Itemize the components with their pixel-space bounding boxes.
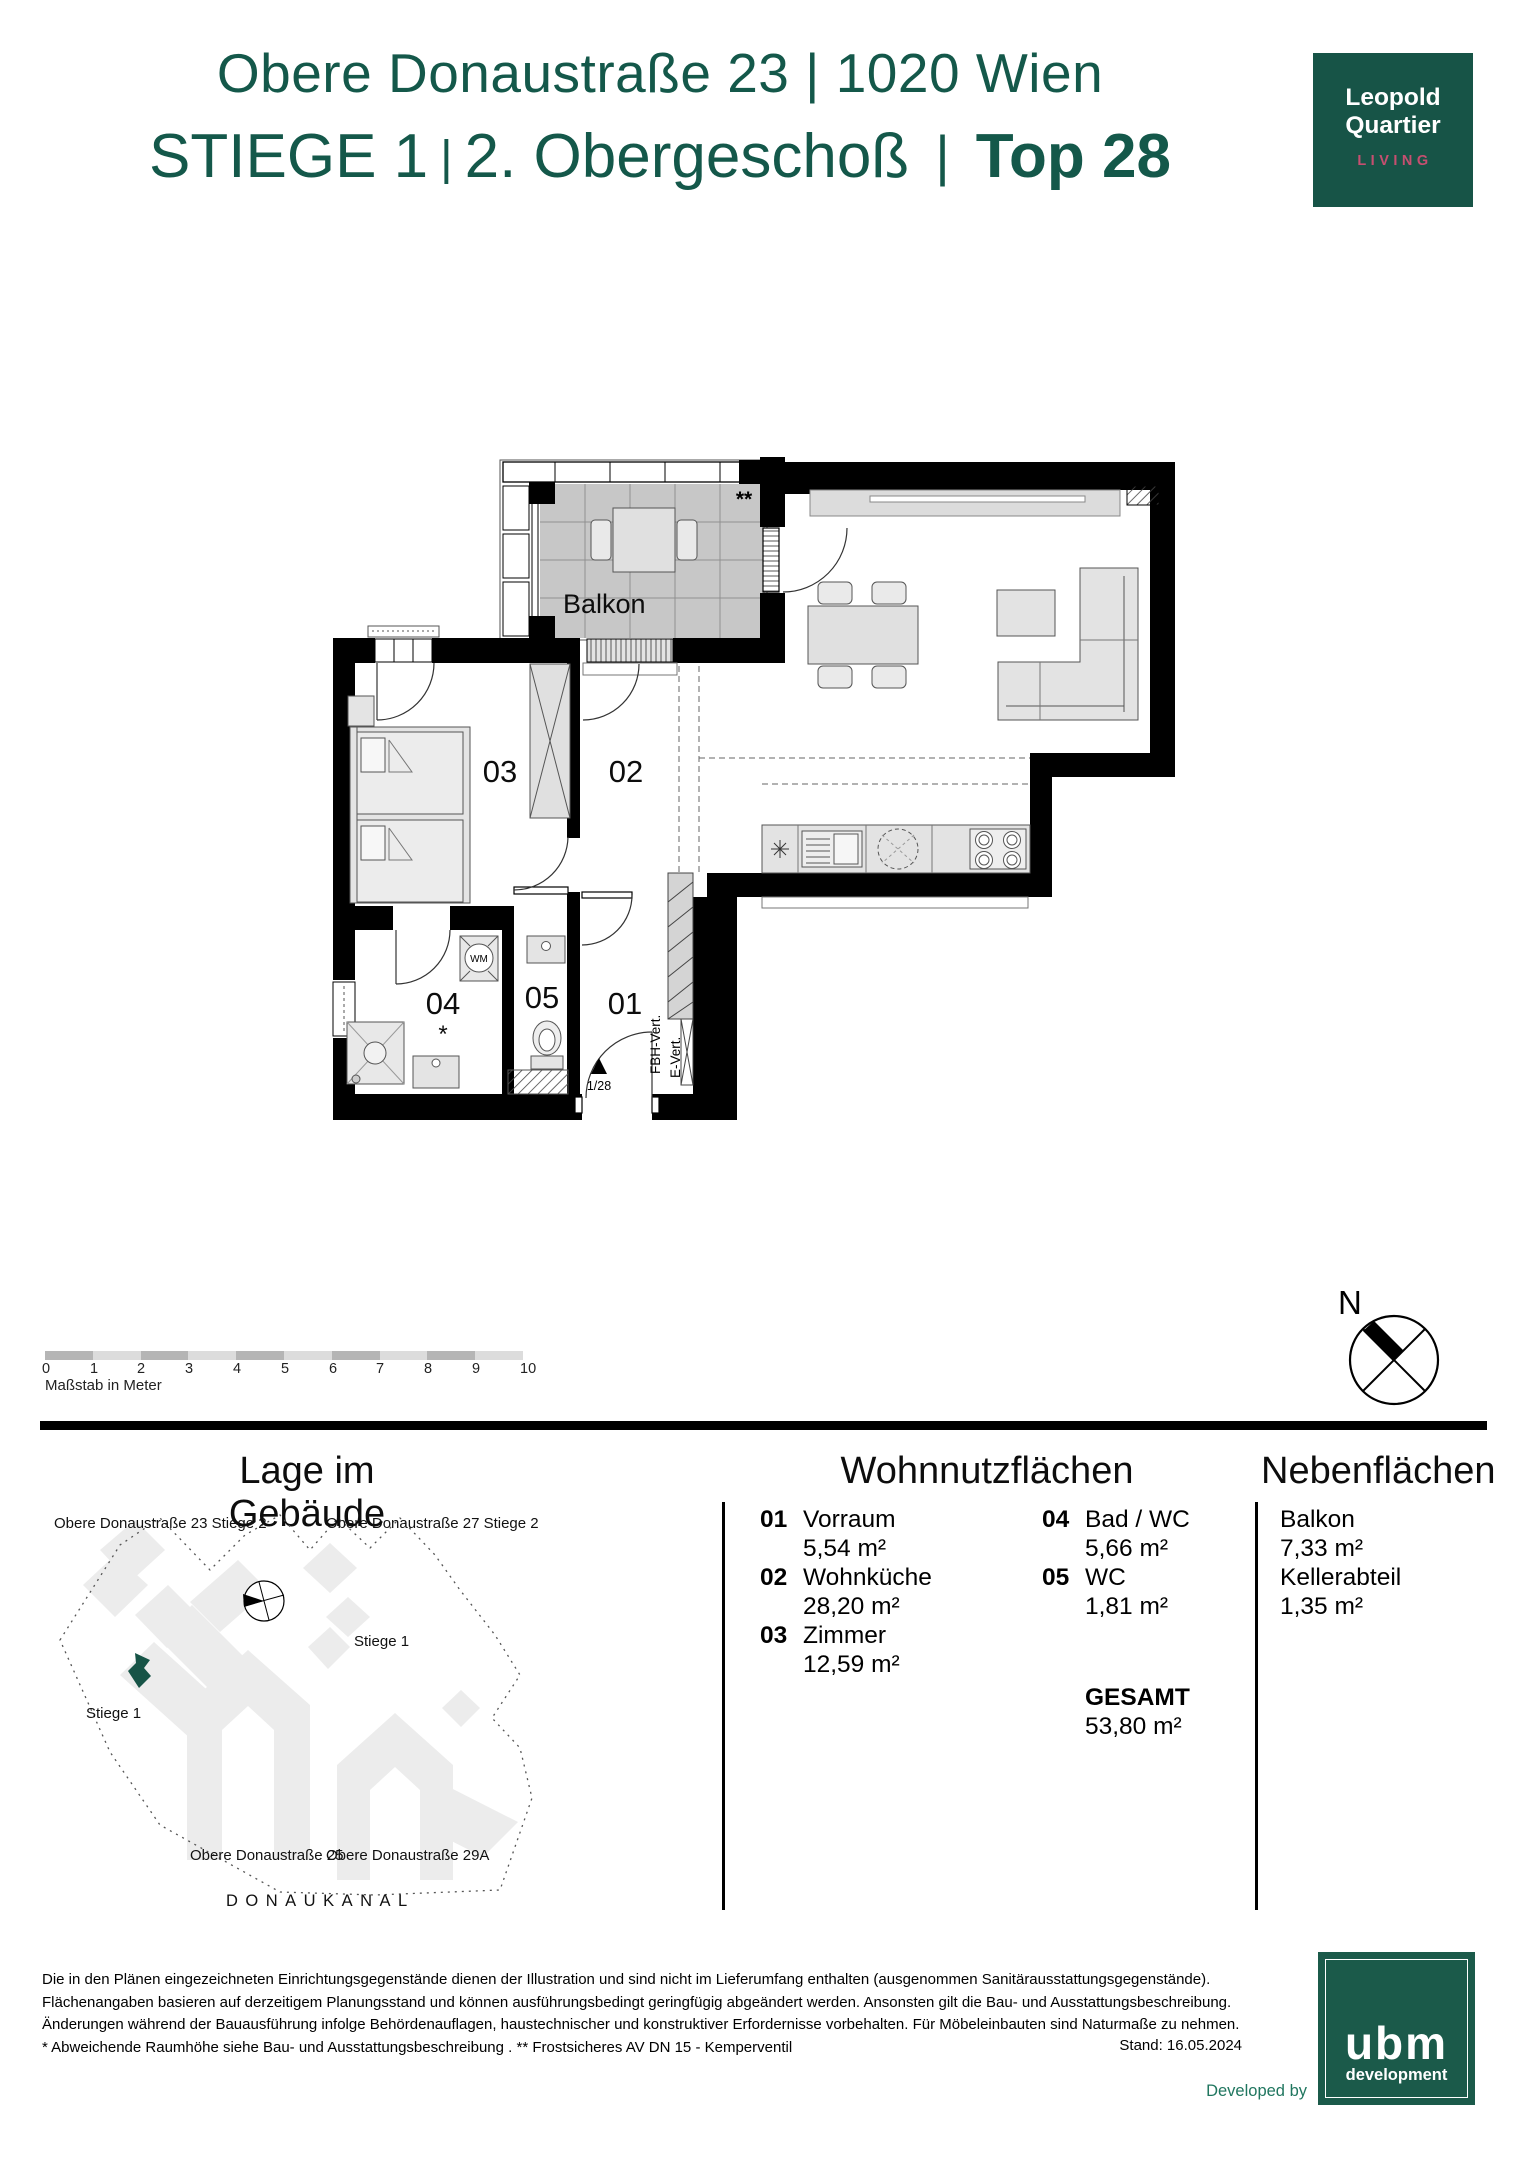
secondary-areas-title: Nebenflächen	[1261, 1450, 1481, 1493]
scale-tick: 5	[281, 1361, 311, 1377]
fbh-vert-label: FBH-Vert.	[648, 1015, 663, 1074]
ubm-subtitle: development	[1346, 2065, 1448, 2085]
balcony-window-corridor	[587, 639, 673, 662]
room-label-05: 05	[525, 980, 559, 1015]
room05-door-swing	[514, 837, 568, 890]
ubm-logo: ubm development	[1318, 1952, 1475, 2105]
site-label-stiege-left: Stiege 1	[86, 1705, 141, 1722]
area-row: 04 Bad / WC 5,66 m²	[1042, 1505, 1252, 1563]
total-area-block: GESAMT 53,80 m²	[1085, 1683, 1285, 1741]
area-value: 5,54 m²	[803, 1534, 1030, 1563]
site-label-canal: DONAUKANAL	[226, 1892, 415, 1910]
washing-machine-label: WM	[470, 954, 488, 965]
logo-tagline: LIVING	[1353, 153, 1432, 169]
room-label-04: 04	[426, 986, 460, 1021]
wc-fixtures	[508, 936, 568, 1094]
ubm-logo-inner: ubm development	[1325, 1959, 1468, 2098]
area-row: 05 WC 1,81 m²	[1042, 1563, 1252, 1621]
floorplan-drawing: Balkon **	[330, 440, 1180, 1125]
installation-shaft: FBH-Vert. E-Vert.	[648, 873, 693, 1085]
site-label-top-right: Obere Donaustraße 27 Stiege 2	[326, 1515, 539, 1532]
area-value: 12,59 m²	[803, 1650, 1030, 1679]
bedroom-furniture	[348, 664, 570, 903]
disclaimer-line: * Abweichende Raumhöhe siehe Bau- und Au…	[42, 2037, 792, 2060]
scale-tick: 3	[185, 1361, 215, 1377]
plan-date: Stand: 16.05.2024	[900, 2037, 1242, 2054]
area-number: 05	[1042, 1563, 1069, 1592]
room-label-02: 02	[609, 754, 643, 789]
ubm-wordmark: ubm	[1345, 2021, 1448, 2065]
secondary-area-value: 7,33 m²	[1280, 1534, 1490, 1563]
living-areas-title: Wohnnutzflächen	[837, 1450, 1137, 1493]
developed-by-label: Developed by	[1100, 2082, 1307, 2101]
site-label-bottom-left: Obere Donaustraße 25	[190, 1847, 343, 1864]
area-value: 28,20 m²	[803, 1592, 1030, 1621]
frost-valve-annotation: **	[736, 488, 753, 511]
area-row: 02 Wohnküche 28,20 m²	[760, 1563, 1030, 1621]
room04-star-annotation: *	[438, 1021, 447, 1048]
balcony: Balkon **	[500, 460, 767, 640]
secondary-area-name: Balkon	[1280, 1505, 1490, 1534]
scale-caption: Maßstab in Meter	[45, 1377, 162, 1394]
room01-door-swing	[582, 895, 632, 945]
section-divider	[40, 1421, 1487, 1430]
area-row: 01 Vorraum 5,54 m²	[760, 1505, 1030, 1563]
scale-tick: 4	[233, 1361, 263, 1377]
title-floor: 2. Obergeschoß	[465, 122, 910, 191]
scale-bar	[45, 1351, 523, 1360]
area-value: 1,81 m²	[1085, 1592, 1252, 1621]
area-name: Wohnküche	[803, 1563, 1030, 1592]
scale-tick: 2	[137, 1361, 167, 1377]
divider-left	[722, 1502, 725, 1910]
logo-line2: Quartier	[1345, 112, 1440, 140]
entry-mat	[508, 1070, 568, 1094]
area-name: Vorraum	[803, 1505, 1030, 1534]
hatched-shaft-box	[1127, 486, 1159, 505]
leopold-quartier-logo: Leopold Quartier LIVING	[1313, 53, 1473, 207]
living-furniture	[808, 568, 1138, 720]
areas-column-2: 04 Bad / WC 5,66 m² 05 WC 1,81 m²	[1042, 1505, 1252, 1621]
disclaimer-line: Die in den Plänen eingezeichneten Einric…	[42, 1969, 1210, 1992]
scale-tick: 7	[376, 1361, 406, 1377]
scale-tick: 6	[329, 1361, 359, 1377]
site-label-stiege-right: Stiege 1	[354, 1633, 409, 1650]
header: Obere Donaustraße 23 | 1020 Wien STIEGE …	[40, 44, 1280, 191]
disclaimer-line: Änderungen während der Bauausführung inf…	[42, 2014, 1239, 2037]
areas-column-1: 01 Vorraum 5,54 m² 02 Wohnküche 28,20 m²…	[760, 1505, 1030, 1679]
balcony-label: Balkon	[563, 589, 646, 619]
total-label: GESAMT	[1085, 1683, 1285, 1712]
title-stiege: STIEGE 1	[149, 122, 428, 191]
room04-door-swing	[396, 930, 450, 984]
north-label: N	[1338, 1284, 1362, 1321]
site-plan-map: Obere Donaustraße 23 Stiege 2 Obere Dona…	[40, 1490, 560, 1920]
bathroom-fixtures: WM	[347, 936, 498, 1088]
title-top-number: Top 28	[976, 122, 1171, 191]
room-label-01: 01	[608, 986, 642, 1021]
secondary-areas-column: Balkon 7,33 m² Kellerabteil 1,35 m²	[1280, 1505, 1490, 1621]
scale-tick: 0	[42, 1361, 72, 1377]
area-number: 02	[760, 1563, 787, 1592]
page-title: STIEGE 1|2. Obergeschoß|Top 28	[40, 124, 1280, 191]
address-line: Obere Donaustraße 23 | 1020 Wien	[40, 44, 1280, 102]
balcony-door-living	[763, 528, 779, 592]
area-number: 01	[760, 1505, 787, 1534]
scale-tick: 1	[90, 1361, 120, 1377]
area-row: 03 Zimmer 12,59 m²	[760, 1621, 1030, 1679]
title-separator-1: |	[440, 132, 452, 185]
logo-line1: Leopold	[1345, 84, 1440, 112]
floorplan-document: Obere Donaustraße 23 | 1020 Wien STIEGE …	[0, 0, 1527, 2160]
coffee-table	[997, 590, 1055, 636]
area-number: 03	[760, 1621, 787, 1650]
area-name: Zimmer	[803, 1621, 1030, 1650]
building-shapes	[83, 1520, 518, 1880]
north-compass-icon: N	[1330, 1272, 1450, 1407]
site-compass-icon	[243, 1581, 284, 1621]
area-name: Bad / WC	[1085, 1505, 1252, 1534]
room03-door-swing	[377, 663, 434, 720]
scale-tick: 9	[472, 1361, 502, 1377]
e-vert-label: E-Vert.	[668, 1037, 683, 1078]
scale-tick: 10	[520, 1361, 550, 1377]
area-number: 04	[1042, 1505, 1069, 1534]
secondary-area-value: 1,35 m²	[1280, 1592, 1490, 1621]
area-name: WC	[1085, 1563, 1252, 1592]
area-value: 5,66 m²	[1085, 1534, 1252, 1563]
room-label-03: 03	[483, 754, 517, 789]
disclaimer-line: Flächenangaben basieren auf derzeitigem …	[42, 1992, 1231, 2015]
scale-tick: 8	[424, 1361, 454, 1377]
dining-table	[808, 606, 918, 664]
site-label-top-left: Obere Donaustraße 23 Stiege 2	[54, 1515, 267, 1532]
secondary-area-name: Kellerabteil	[1280, 1563, 1490, 1592]
room03-french-window	[375, 639, 432, 662]
site-label-bottom-right: Obere Donaustraße 29A	[326, 1847, 489, 1864]
kitchen	[762, 825, 1030, 873]
title-separator-2: |	[935, 124, 950, 187]
total-value: 53,80 m²	[1085, 1712, 1285, 1741]
entrance-number: 1/28	[587, 1079, 611, 1093]
